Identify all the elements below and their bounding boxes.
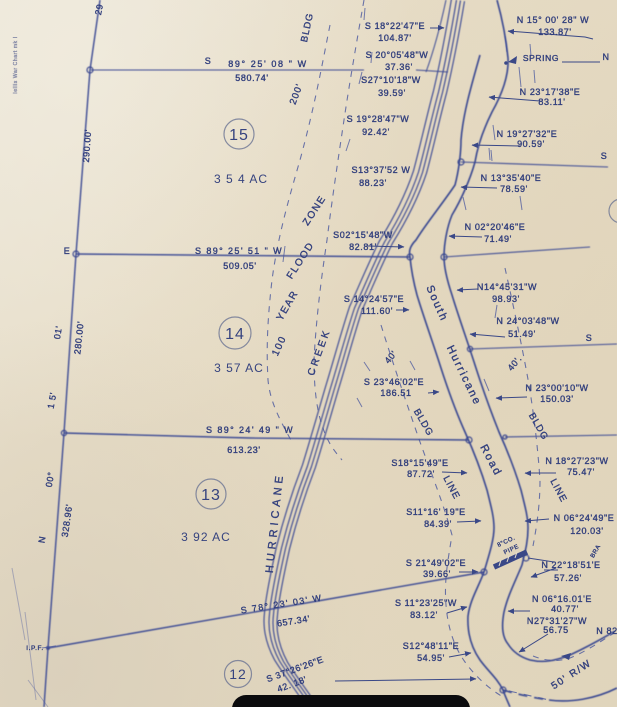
svg-text:14: 14 <box>225 326 245 343</box>
svg-text:S 18°22'47"E: S 18°22'47"E <box>365 21 425 31</box>
svg-text:N 23°00'10"W: N 23°00'10"W <box>525 383 588 393</box>
svg-text:3 57 AC: 3 57 AC <box>214 361 264 375</box>
svg-text:S 21°49'02"E: S 21°49'02"E <box>406 558 466 568</box>
svg-text:39.59': 39.59' <box>378 88 406 98</box>
svg-text:S: S <box>601 151 608 161</box>
svg-text:S 20°05'48"W: S 20°05'48"W <box>366 50 429 60</box>
svg-text:71.49': 71.49' <box>484 234 512 244</box>
svg-text:3 92 AC: 3 92 AC <box>181 530 231 544</box>
svg-text:SPRING: SPRING <box>523 53 559 63</box>
svg-text:S27°10'18"W: S27°10'18"W <box>361 75 421 85</box>
svg-text:56.75: 56.75 <box>543 625 569 635</box>
svg-text:3 5 4 AC: 3 5 4 AC <box>214 172 268 186</box>
svg-text:98.93': 98.93' <box>492 294 520 304</box>
svg-text:40.77': 40.77' <box>551 604 579 614</box>
svg-text:N 22°18'51'E: N 22°18'51'E <box>541 560 600 570</box>
svg-text:87.72': 87.72' <box>407 469 435 479</box>
svg-text:15: 15 <box>229 127 249 144</box>
svg-text:S 19°28'47"W: S 19°28'47"W <box>347 114 410 124</box>
svg-text:N 06°16.01'E: N 06°16.01'E <box>532 594 592 604</box>
svg-text:N: N <box>602 52 609 62</box>
svg-text:104.87': 104.87' <box>378 33 411 43</box>
svg-text:S: S <box>586 333 593 343</box>
svg-text:N 02°20'46"E: N 02°20'46"E <box>465 222 526 232</box>
svg-text:N 24°03'48"W: N 24°03'48"W <box>496 316 559 326</box>
svg-text:580.74': 580.74' <box>235 73 268 83</box>
svg-text:N 13°35'40"E: N 13°35'40"E <box>481 173 542 183</box>
svg-text:186.51: 186.51 <box>380 388 411 398</box>
svg-text:51.49': 51.49' <box>508 329 536 339</box>
svg-text:S12°48'11"E: S12°48'11"E <box>403 641 459 651</box>
svg-text:509.05': 509.05' <box>223 261 256 271</box>
svg-text:S 89° 25' 51 " W: S 89° 25' 51 " W <box>195 246 283 256</box>
svg-text:150.03': 150.03' <box>540 394 573 404</box>
svg-text:N 18°27'23"W: N 18°27'23"W <box>545 456 608 466</box>
svg-text:90.59': 90.59' <box>517 139 545 149</box>
svg-text:S 14°24'57"E: S 14°24'57"E <box>344 294 404 304</box>
svg-text:75.47': 75.47' <box>567 467 595 477</box>
svg-text:N 19°27'32"E: N 19°27'32"E <box>497 129 558 139</box>
svg-text:92.42': 92.42' <box>362 127 390 137</box>
svg-text:S02°15'48"W: S02°15'48"W <box>333 230 393 240</box>
svg-text:S 89° 24' 49 " W: S 89° 24' 49 " W <box>206 425 294 435</box>
svg-text:N 15° 00' 28" W: N 15° 00' 28" W <box>517 15 590 25</box>
svg-text:83.11': 83.11' <box>538 97 565 107</box>
svg-text:39.66': 39.66' <box>423 569 451 579</box>
svg-text:E: E <box>64 246 71 256</box>
svg-text:120.03': 120.03' <box>570 526 603 536</box>
svg-text:S 23°46'02"E: S 23°46'02"E <box>364 377 424 387</box>
svg-text:133.87': 133.87' <box>538 27 571 37</box>
svg-text:S11°16' 19"E: S11°16' 19"E <box>406 507 466 517</box>
svg-text:S18°15'49"E: S18°15'49"E <box>391 458 448 468</box>
svg-text:54.95': 54.95' <box>417 653 445 663</box>
svg-text:89° 25' 08 " W: 89° 25' 08 " W <box>228 59 307 69</box>
svg-text:N 23°17'38"E: N 23°17'38"E <box>520 87 581 97</box>
svg-text:88.23': 88.23' <box>359 178 387 188</box>
svg-text:84.39': 84.39' <box>424 519 452 529</box>
svg-text:N 82: N 82 <box>596 626 617 636</box>
svg-text:82.81': 82.81' <box>349 242 377 252</box>
svg-text:83.12': 83.12' <box>410 610 438 620</box>
svg-text:S 11°23'25"W: S 11°23'25"W <box>395 598 457 608</box>
svg-text:Iellis War Chart mk I: Iellis War Chart mk I <box>13 36 19 93</box>
svg-text:78.59': 78.59' <box>500 184 528 194</box>
svg-text:57.26': 57.26' <box>554 573 582 583</box>
svg-text:13: 13 <box>201 487 221 504</box>
svg-text:613.23': 613.23' <box>227 445 260 455</box>
svg-text:I.P.F.: I.P.F. <box>26 645 44 652</box>
svg-text:37.36': 37.36' <box>385 62 413 72</box>
svg-text:111.60': 111.60' <box>361 306 393 316</box>
svg-text:S: S <box>205 56 212 66</box>
svg-text:12: 12 <box>229 666 247 682</box>
svg-text:S13°37'52 W: S13°37'52 W <box>352 165 411 175</box>
svg-text:N 06°24'49"E: N 06°24'49"E <box>554 513 615 523</box>
svg-text:N14°45'31"W: N14°45'31"W <box>477 282 537 292</box>
